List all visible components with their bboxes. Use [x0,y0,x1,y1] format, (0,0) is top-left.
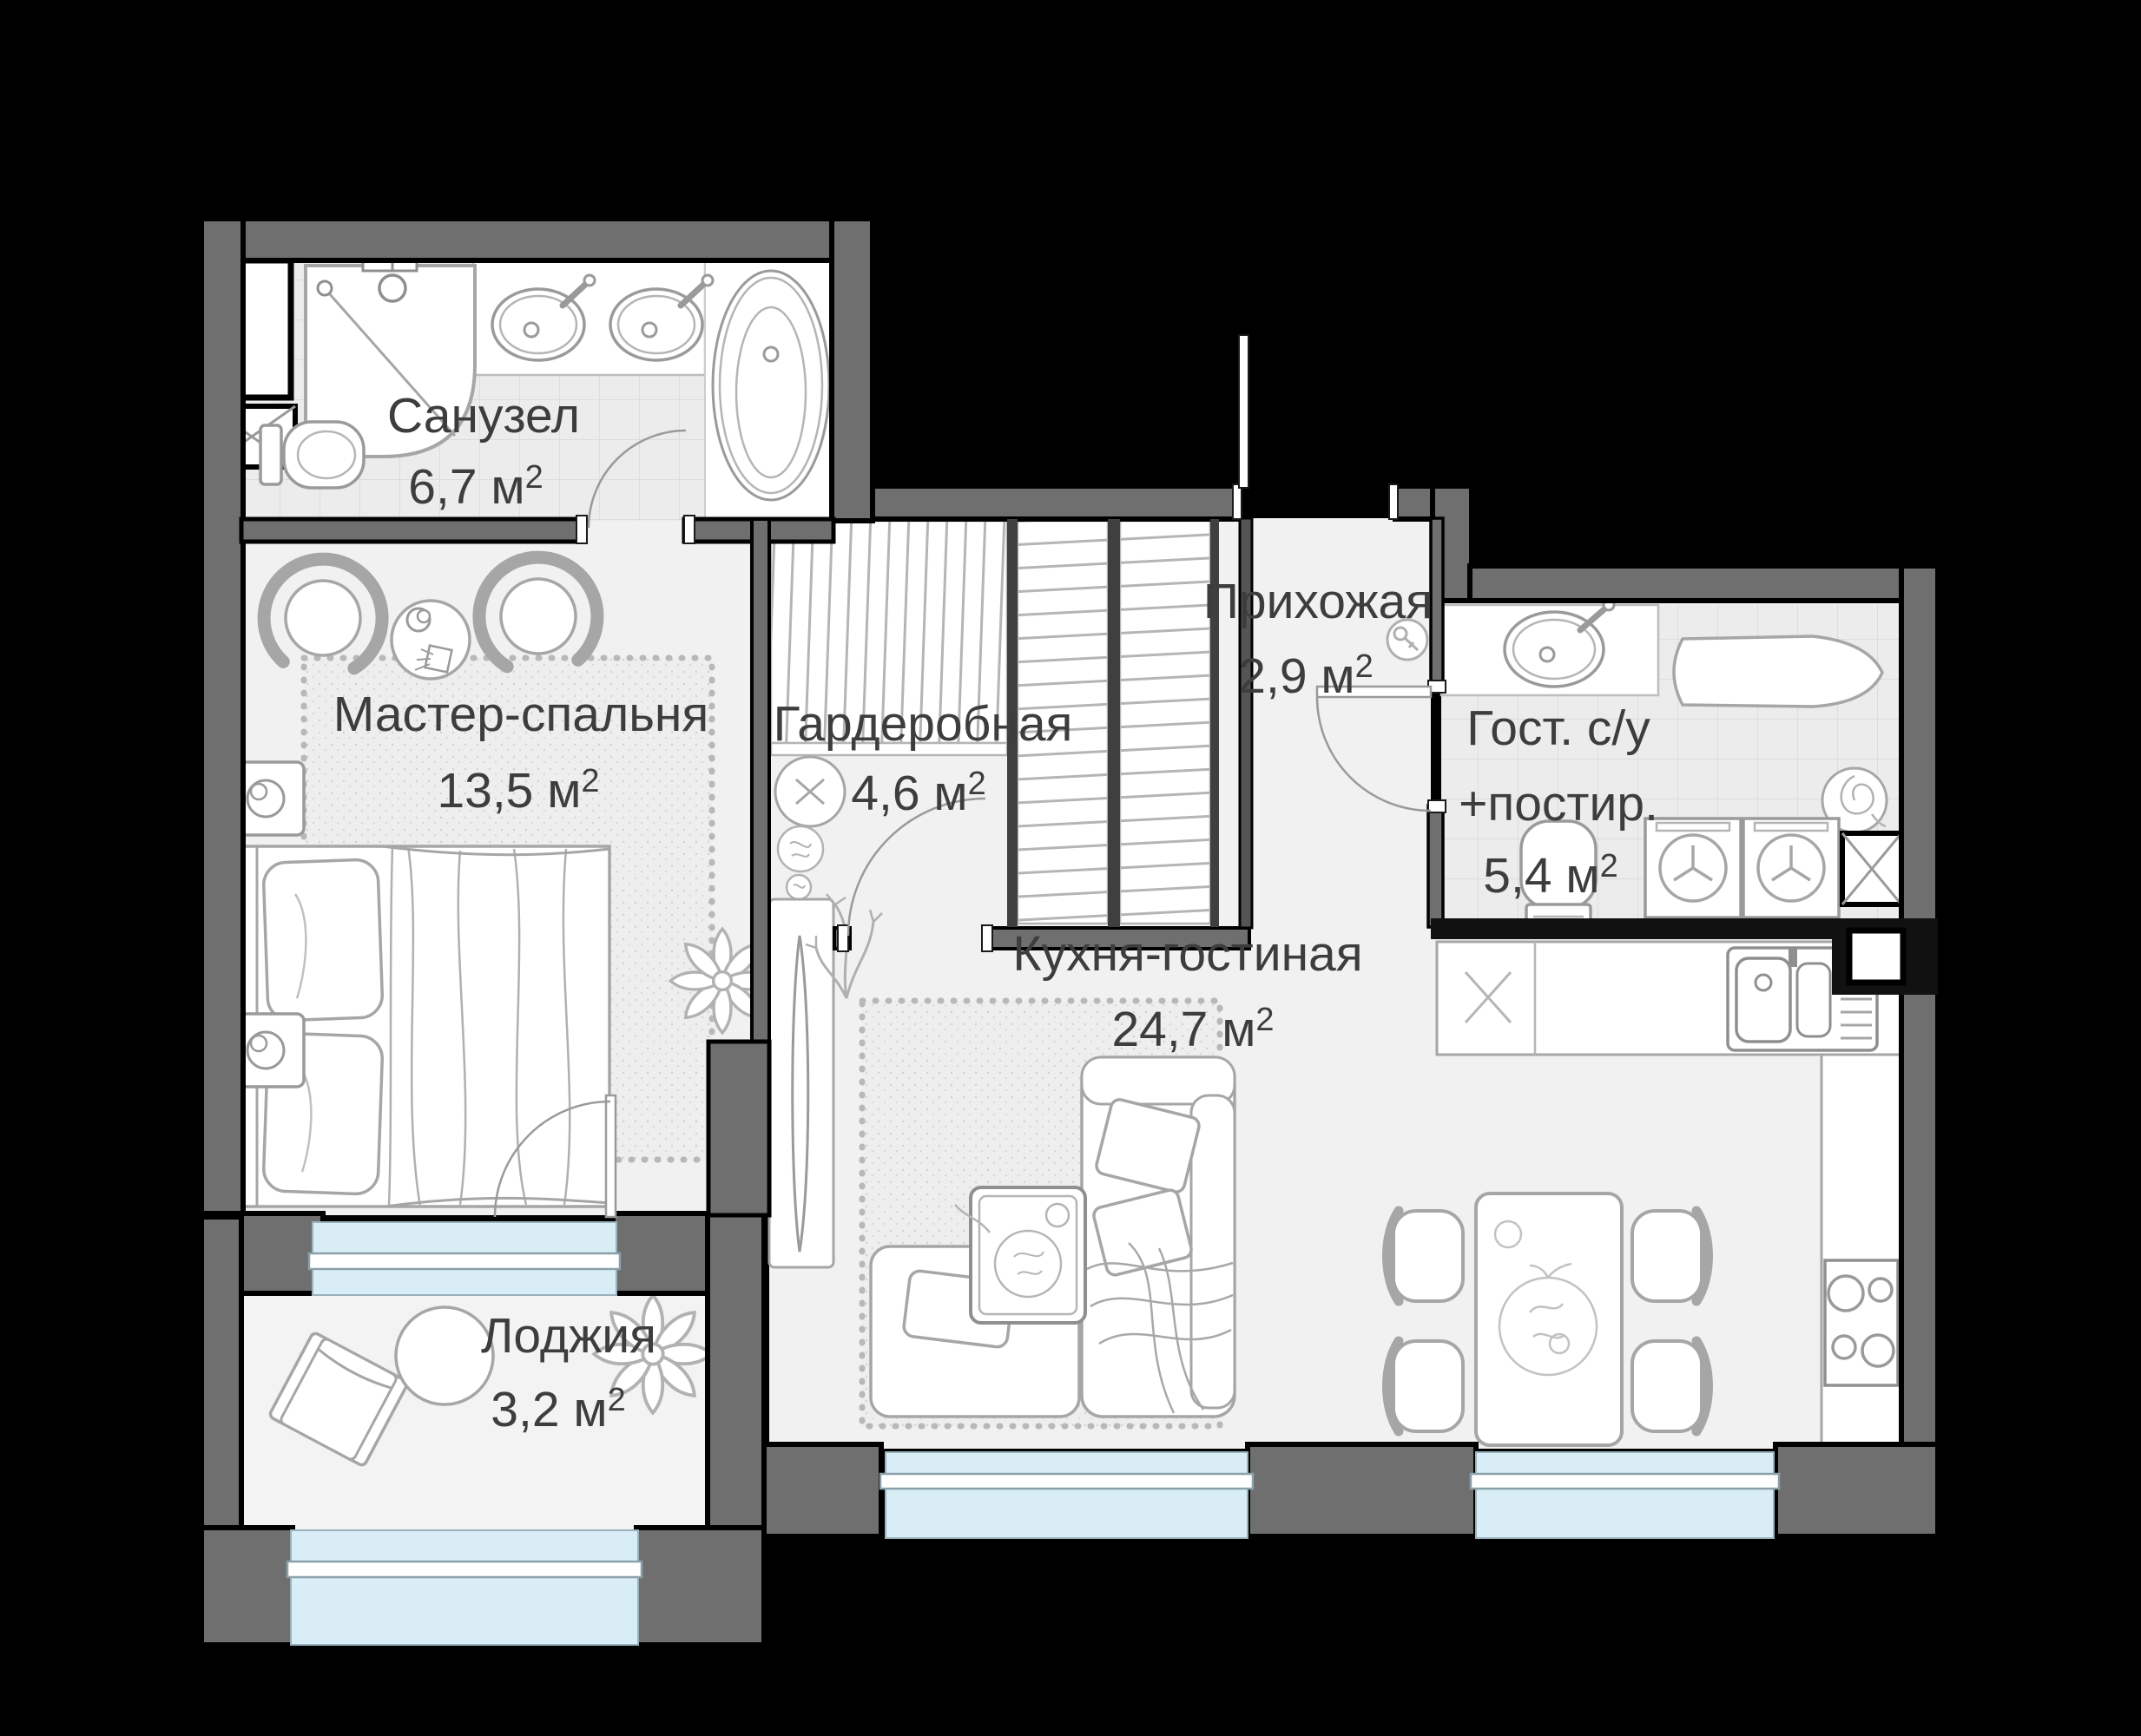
chair-icon [1387,1341,1464,1431]
window-kitchen-2 [1471,1452,1779,1538]
toilet-icon [260,422,364,488]
chair-icon [1632,1211,1709,1301]
entrance-door-leaf [1239,335,1248,488]
room-label-loggia: Лоджия [481,1308,656,1364]
chair-icon [1387,1211,1464,1301]
side-table-icon [392,601,470,679]
room-label-kitchen-living: Кухня-гостиная [1012,926,1362,982]
window-loggia-bottom [287,1530,642,1645]
door-leaf [606,1095,616,1217]
room-area-wardrobe: 4,6 м2 [851,766,985,821]
room-label-bathroom: Санузел [387,388,580,444]
room-label-guest-bathroom: Гост. с/у [1466,700,1650,756]
tv-icon [793,936,808,1252]
ironing-board-icon [1674,636,1882,707]
bathtub-icon [713,271,829,500]
entrance-jamb [1389,484,1398,519]
vent-shaft-icon [1842,833,1901,904]
room-label-master-bedroom: Мастер-спальня [333,687,709,742]
room-label-wardrobe: Гардеробная [774,696,1073,752]
ceiling-fan-icon [775,757,845,826]
room-area-loggia: 3,2 м2 [491,1382,625,1437]
room-area-hallway: 2,9 м2 [1238,648,1373,704]
entrance-jamb [1233,484,1242,519]
window-kitchen-1 [880,1452,1253,1538]
washing-machine-icon [1743,819,1839,917]
room-area-kitchen-living: 24,7 м2 [1111,1002,1274,1057]
coffee-table-icon [955,1187,1085,1323]
duct-shaft [1849,930,1903,983]
hob-icon [1825,1260,1898,1385]
wardrobe-shelves-icon [1120,521,1210,924]
room-label-hallway: Прихожая [1203,574,1433,629]
chair-icon [1632,1341,1709,1431]
loggia-table-icon [396,1307,493,1404]
window-bedroom-loggia [309,1222,620,1295]
floor-plan: Санузел 6,7 м2 Мастер-спальня 13,5 м2 Га… [0,0,2141,1736]
room-area-guest-bathroom: 5,4 м2 [1483,848,1617,904]
tv-console-icon [769,899,833,1267]
washing-machine-icon [1645,819,1741,917]
room-area-master-bedroom: 13,5 м2 [437,763,599,819]
room-area-bathroom: 6,7 м2 [408,459,543,515]
room-label-guest-bathroom-2: +постир. [1459,776,1658,832]
